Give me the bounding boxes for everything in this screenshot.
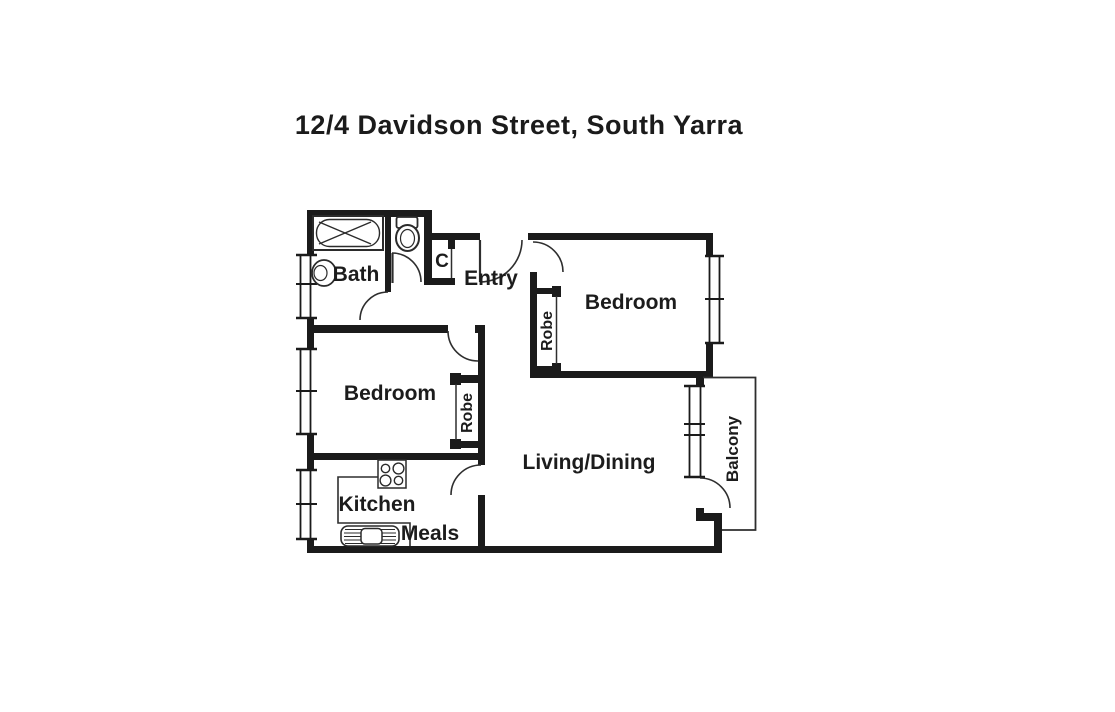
room-label-entry: Entry: [464, 267, 518, 290]
room-label-bedroom-right: Bedroom: [585, 291, 677, 314]
wall: [307, 434, 314, 470]
wall: [307, 453, 485, 460]
room-label-bedroom-left: Bedroom: [344, 382, 436, 405]
bedroom-right-door-arc: [533, 242, 563, 272]
window-living: [684, 386, 705, 477]
wall: [307, 318, 314, 349]
wall: [307, 546, 722, 553]
window-bedroom-right: [705, 256, 724, 343]
wall: [385, 217, 391, 292]
bath-door-arc: [360, 292, 388, 320]
room-label-cupboard: C: [435, 251, 449, 272]
wall: [431, 233, 480, 240]
toilet-icon: [396, 217, 419, 251]
room-label-bath: Bath: [333, 263, 380, 286]
wall: [714, 521, 722, 553]
floor-plan: Bath C Entry Bedroom Robe Bedroom Robe L…: [0, 0, 1115, 712]
bathtub-icon: [313, 216, 383, 250]
room-label-living-dining: Living/Dining: [523, 451, 656, 474]
room-label-balcony: Balcony: [723, 415, 742, 482]
floor-plan-page: 12/4 Davidson Street, South Yarra: [0, 0, 1115, 712]
stove-icon: [378, 460, 406, 488]
kitchen-sink-icon: [341, 526, 399, 546]
window-bedroom-left: [296, 349, 317, 434]
wall: [424, 278, 455, 285]
room-labels: Bath C Entry Bedroom Robe Bedroom Robe L…: [333, 251, 742, 545]
wall: [450, 439, 461, 449]
bedroom-left-door-arc: [448, 331, 478, 361]
kitchen-door-arc: [451, 465, 481, 495]
wall: [530, 272, 537, 378]
wall: [552, 286, 561, 297]
room-label-meals: Meals: [401, 522, 459, 545]
window-kitchen: [296, 470, 317, 539]
wall: [528, 233, 713, 240]
wall: [307, 325, 448, 333]
wc-door-arc: [392, 253, 421, 283]
wall: [552, 363, 561, 374]
wall: [424, 210, 432, 285]
wall: [448, 240, 455, 249]
room-label-robe-left: Robe: [459, 393, 476, 433]
room-label-robe-right: Robe: [539, 311, 556, 351]
wall: [696, 513, 722, 521]
wall: [706, 233, 713, 256]
wall: [450, 373, 461, 385]
wall: [478, 495, 485, 553]
room-label-kitchen: Kitchen: [338, 493, 415, 516]
